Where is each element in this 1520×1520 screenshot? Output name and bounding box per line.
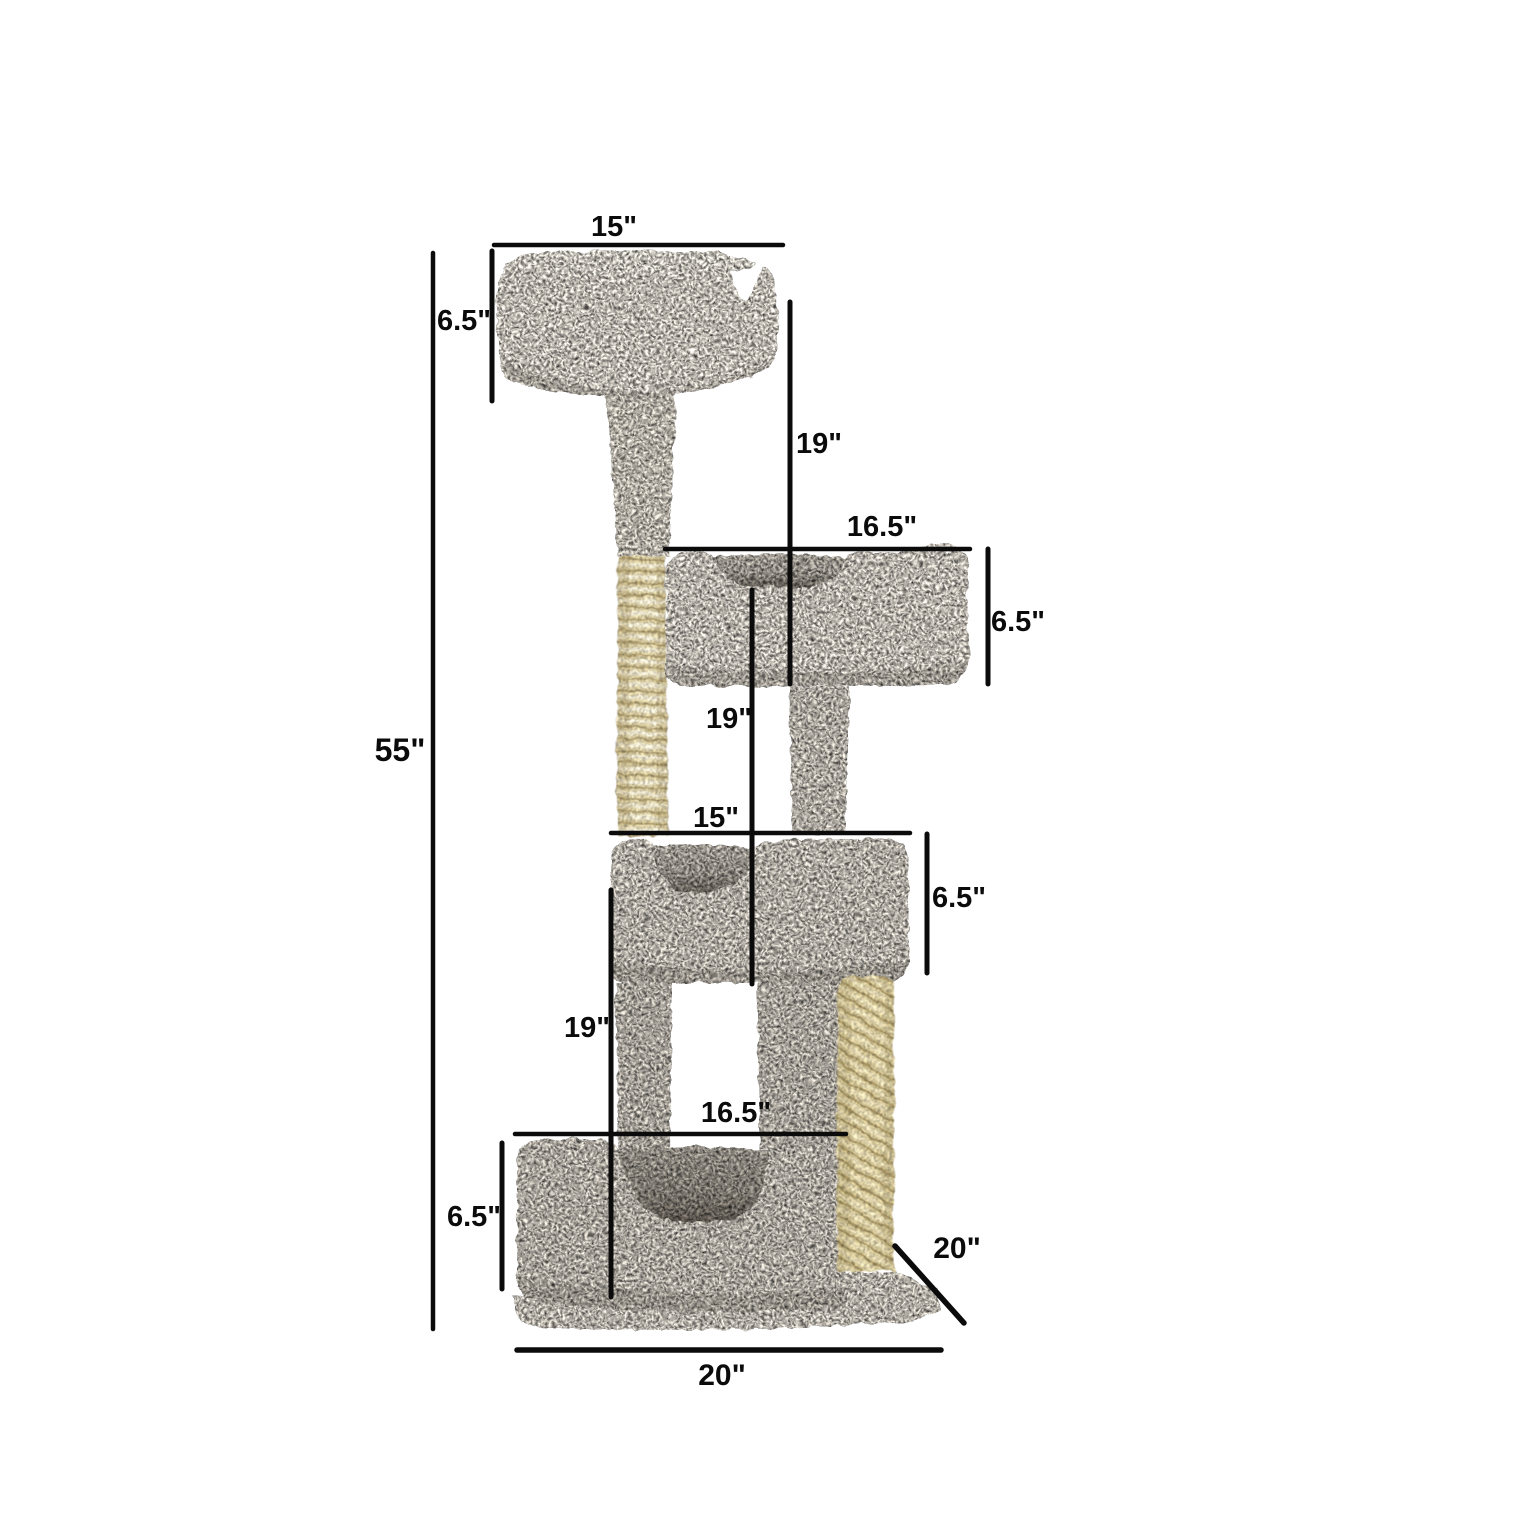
svg-text:19": 19" (706, 703, 752, 735)
svg-text:20": 20" (933, 1232, 981, 1265)
svg-text:16.5": 16.5" (701, 1097, 771, 1129)
svg-text:55": 55" (375, 732, 426, 768)
svg-text:15": 15" (591, 211, 637, 243)
svg-text:20": 20" (698, 1359, 746, 1392)
svg-text:16.5": 16.5" (847, 511, 917, 543)
svg-text:6.5": 6.5" (447, 1201, 501, 1233)
svg-text:6.5": 6.5" (991, 606, 1045, 638)
svg-text:6.5": 6.5" (437, 305, 491, 337)
svg-text:19": 19" (564, 1012, 610, 1044)
svg-text:19": 19" (796, 428, 842, 460)
svg-text:6.5": 6.5" (932, 882, 986, 914)
svg-text:15": 15" (693, 802, 739, 834)
